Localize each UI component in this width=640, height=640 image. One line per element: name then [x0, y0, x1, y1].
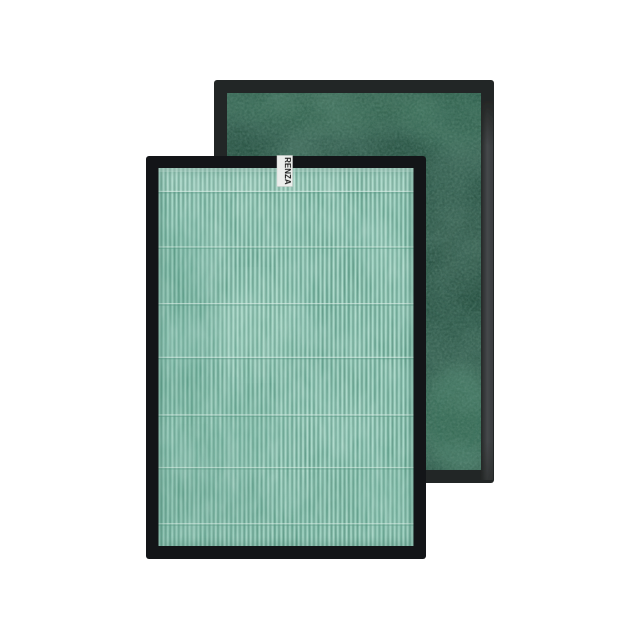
- svg-text:RENZA: RENZA: [283, 157, 292, 185]
